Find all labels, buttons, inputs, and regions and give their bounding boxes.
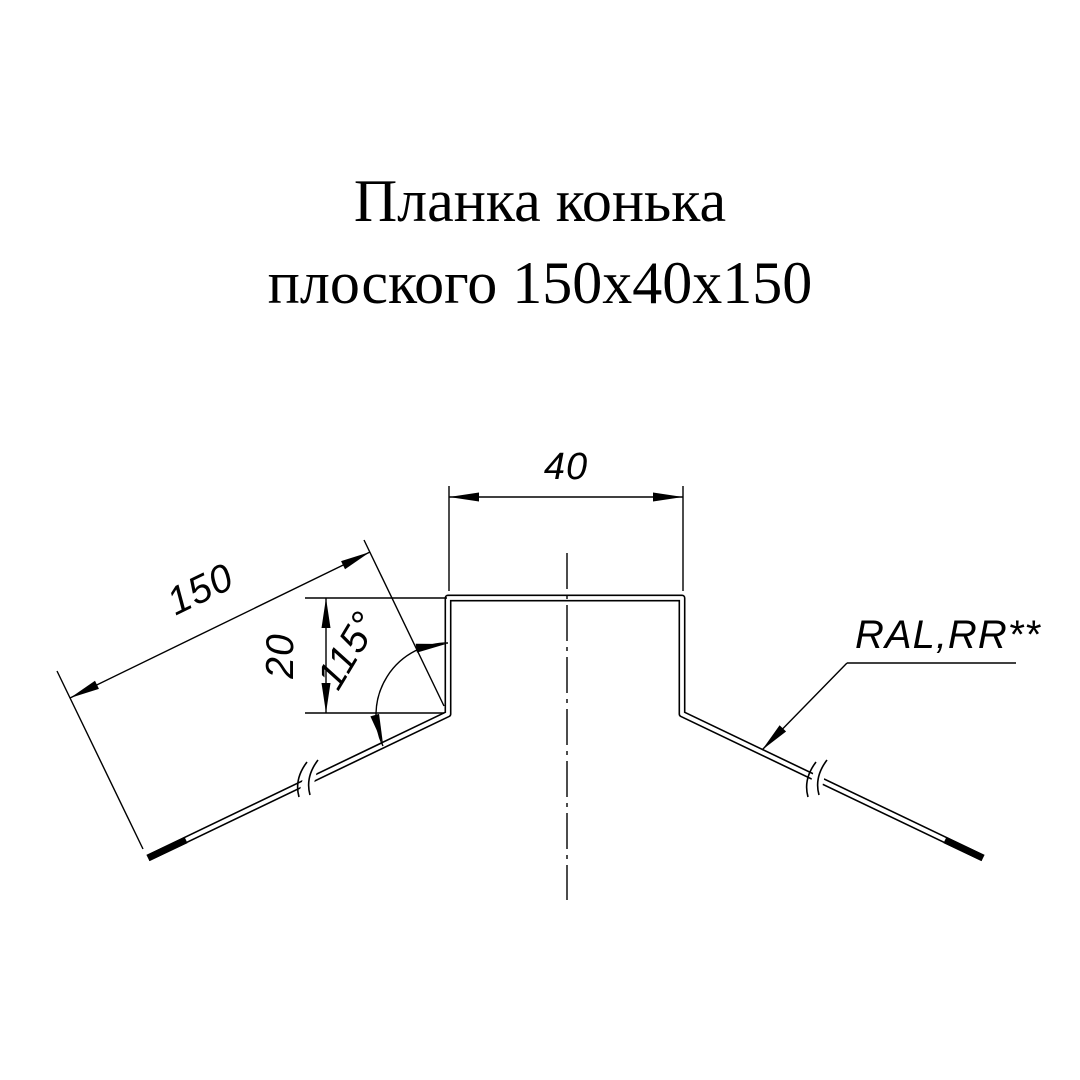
leader-arrow [759,725,786,753]
dimension-arrow [341,548,372,569]
profile-right-hem [945,840,983,858]
coating-label: RAL,RR** [759,613,1042,753]
dimension-value-20: 20 [259,633,302,679]
dimension-value-40: 40 [544,446,588,488]
dimension-40: 40 [449,446,683,591]
dimension-arrow [68,681,99,702]
dimension-value-angle: 115° [309,604,388,696]
technical-drawing: 40 150 20 115° RAL,RR [0,0,1080,1080]
coating-label-text: RAL,RR** [855,613,1041,657]
drawing-page: Планка конька плоского 150х40х150 [0,0,1080,1080]
dimension-arrow [449,493,479,502]
dimension-arrow [653,493,683,502]
dimension-150: 150 [57,540,444,849]
dimension-value-150: 150 [161,556,241,624]
dimension-arrow [416,640,447,653]
break-symbol-left [298,758,318,799]
dimension-arrow [322,598,331,628]
profile-left-hem [148,840,186,858]
